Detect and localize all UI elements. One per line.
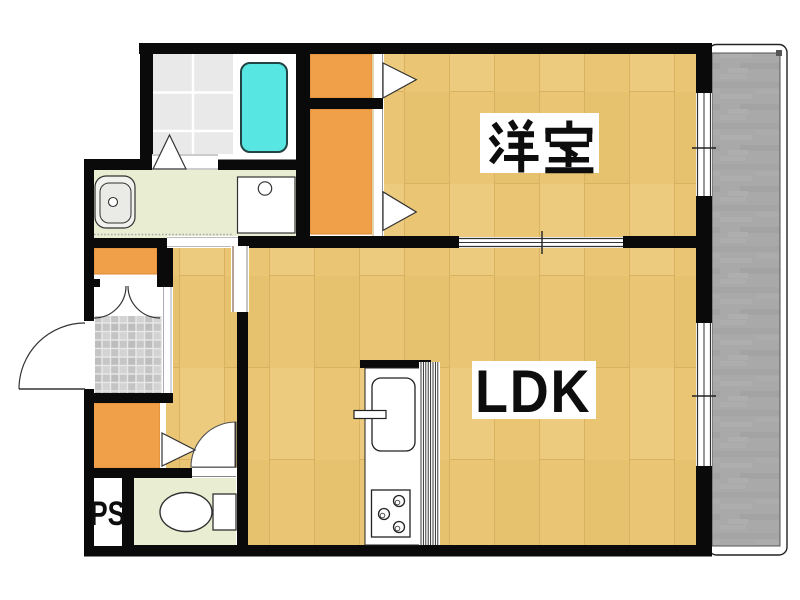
svg-text:PS: PS <box>90 495 125 533</box>
svg-text:LDK: LDK <box>475 358 591 425</box>
